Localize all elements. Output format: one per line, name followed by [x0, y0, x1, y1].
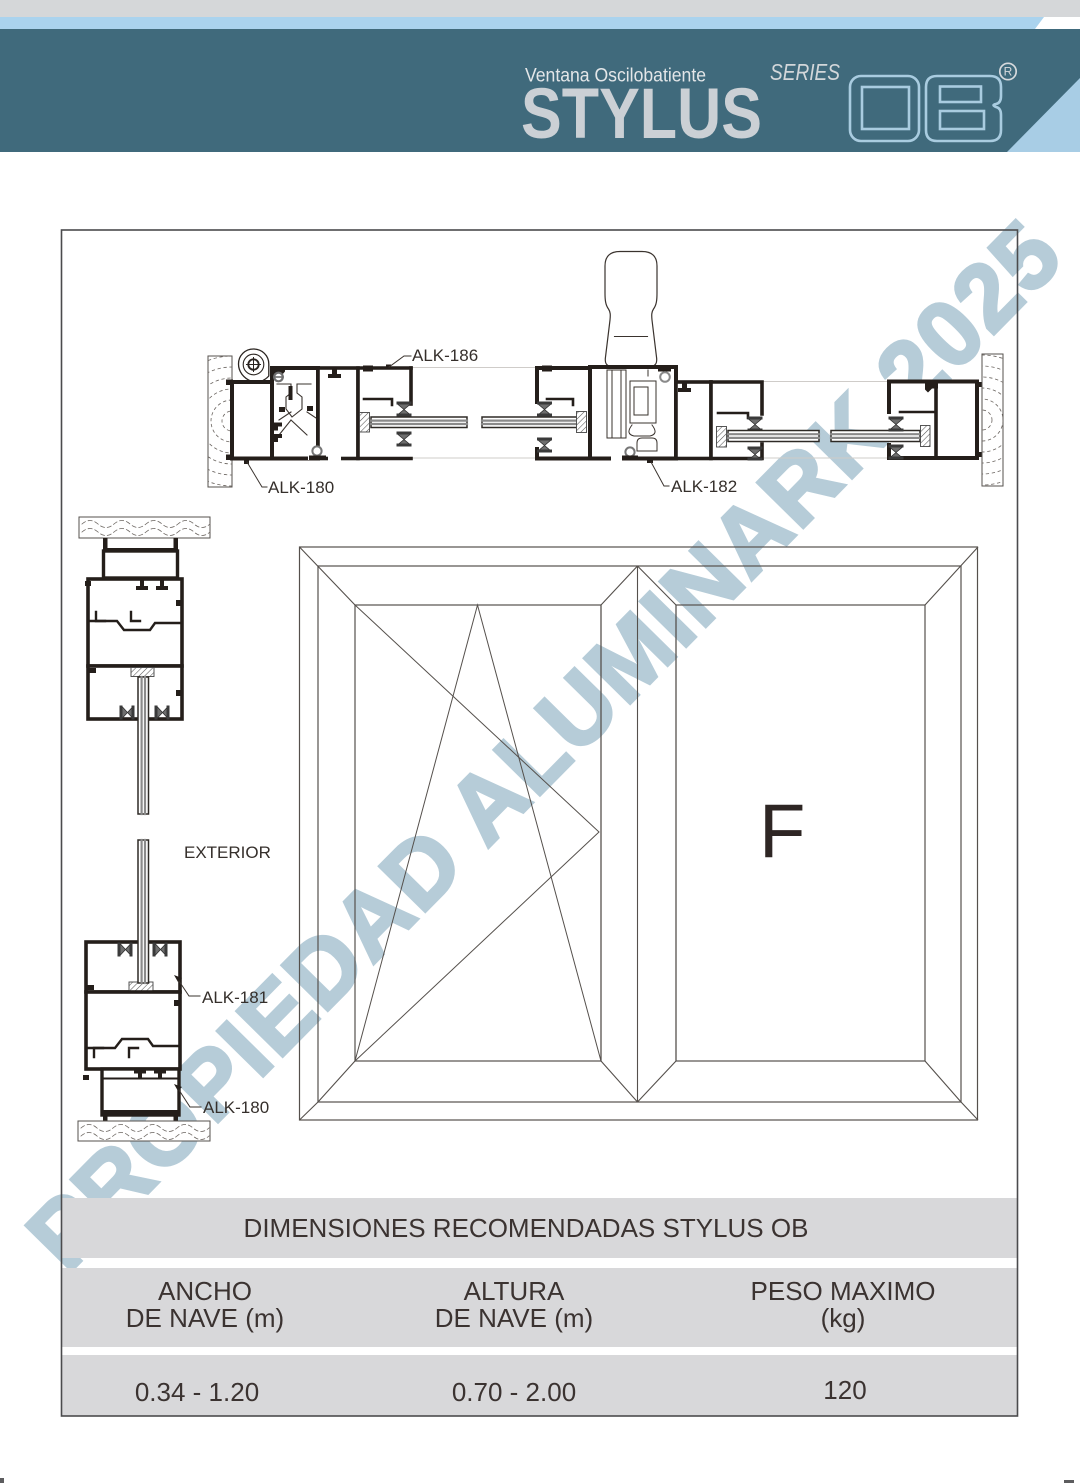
svg-text:ALK-186: ALK-186	[412, 346, 478, 365]
svg-text:120: 120	[823, 1375, 866, 1405]
svg-text:0.34 - 1.20: 0.34 - 1.20	[135, 1377, 259, 1407]
svg-text:F: F	[759, 789, 805, 874]
svg-text:DE NAVE (m): DE NAVE (m)	[435, 1303, 593, 1333]
svg-text:PESO MAXIMO: PESO MAXIMO	[751, 1276, 936, 1306]
svg-text:0.70 - 2.00: 0.70 - 2.00	[452, 1377, 576, 1407]
svg-text:DE NAVE (m): DE NAVE (m)	[126, 1303, 284, 1333]
svg-text:SERIES: SERIES	[770, 59, 841, 85]
svg-text:ALK-180: ALK-180	[268, 478, 334, 497]
svg-text:STYLUS: STYLUS	[521, 75, 762, 154]
svg-text:(kg): (kg)	[821, 1303, 866, 1333]
svg-text:ALK-181: ALK-181	[202, 988, 268, 1007]
svg-text:ALK-182: ALK-182	[671, 477, 737, 496]
svg-text:DIMENSIONES RECOMENDADAS STYLU: DIMENSIONES RECOMENDADAS STYLUS OB	[244, 1213, 809, 1243]
svg-text:R: R	[1004, 65, 1013, 79]
svg-text:ANCHO: ANCHO	[158, 1276, 252, 1306]
svg-text:ALTURA: ALTURA	[464, 1276, 565, 1306]
svg-text:EXTERIOR: EXTERIOR	[184, 843, 271, 862]
svg-text:ALK-180: ALK-180	[203, 1098, 269, 1117]
